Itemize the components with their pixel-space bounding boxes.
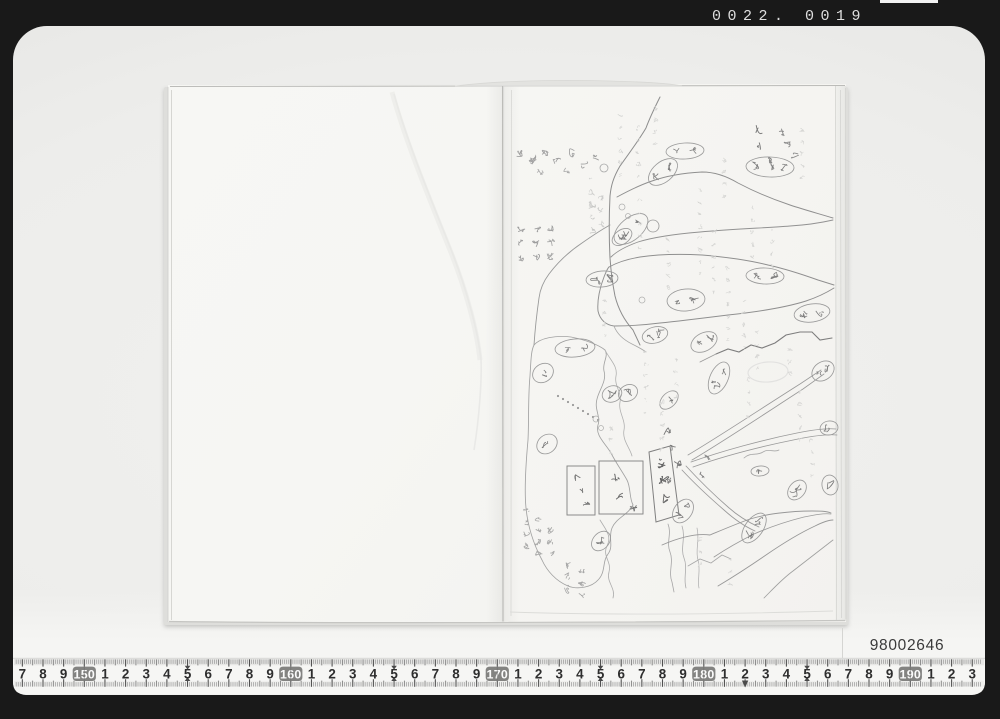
svg-text:4: 4 bbox=[783, 666, 791, 681]
svg-text:3: 3 bbox=[556, 666, 563, 681]
svg-text:5: 5 bbox=[184, 666, 192, 681]
svg-text:6: 6 bbox=[204, 666, 211, 681]
svg-text:1: 1 bbox=[927, 666, 935, 681]
svg-text:5: 5 bbox=[803, 666, 811, 681]
svg-text:1: 1 bbox=[308, 666, 316, 681]
svg-text:5: 5 bbox=[597, 666, 605, 681]
svg-text:7: 7 bbox=[225, 666, 232, 681]
svg-text:7: 7 bbox=[845, 666, 852, 681]
svg-text:9: 9 bbox=[473, 666, 480, 681]
svg-text:7: 7 bbox=[19, 666, 26, 681]
svg-text:1: 1 bbox=[721, 666, 729, 681]
svg-text:6: 6 bbox=[824, 666, 831, 681]
svg-text:7: 7 bbox=[638, 666, 645, 681]
svg-text:2: 2 bbox=[122, 666, 129, 681]
svg-text:2: 2 bbox=[948, 666, 955, 681]
svg-text:4: 4 bbox=[370, 666, 378, 681]
svg-text:8: 8 bbox=[865, 666, 873, 681]
svg-text:7: 7 bbox=[432, 666, 439, 681]
svg-text:1: 1 bbox=[514, 666, 522, 681]
svg-text:3: 3 bbox=[762, 666, 769, 681]
svg-text:2: 2 bbox=[328, 666, 335, 681]
svg-text:2: 2 bbox=[535, 666, 542, 681]
svg-text:5: 5 bbox=[390, 666, 398, 681]
svg-text:4: 4 bbox=[576, 666, 584, 681]
svg-text:3: 3 bbox=[349, 666, 356, 681]
svg-text:8: 8 bbox=[246, 666, 254, 681]
svg-text:3: 3 bbox=[969, 666, 976, 681]
svg-text:9: 9 bbox=[60, 666, 67, 681]
svg-text:3: 3 bbox=[143, 666, 150, 681]
svg-text:2: 2 bbox=[741, 666, 748, 681]
svg-text:9: 9 bbox=[886, 666, 893, 681]
svg-text:1: 1 bbox=[101, 666, 109, 681]
svg-text:8: 8 bbox=[452, 666, 460, 681]
svg-text:8: 8 bbox=[659, 666, 667, 681]
svg-text:8: 8 bbox=[39, 666, 47, 681]
svg-text:4: 4 bbox=[163, 666, 171, 681]
svg-text:6: 6 bbox=[411, 666, 418, 681]
svg-text:9: 9 bbox=[679, 666, 686, 681]
svg-text:6: 6 bbox=[617, 666, 624, 681]
svg-text:9: 9 bbox=[266, 666, 273, 681]
